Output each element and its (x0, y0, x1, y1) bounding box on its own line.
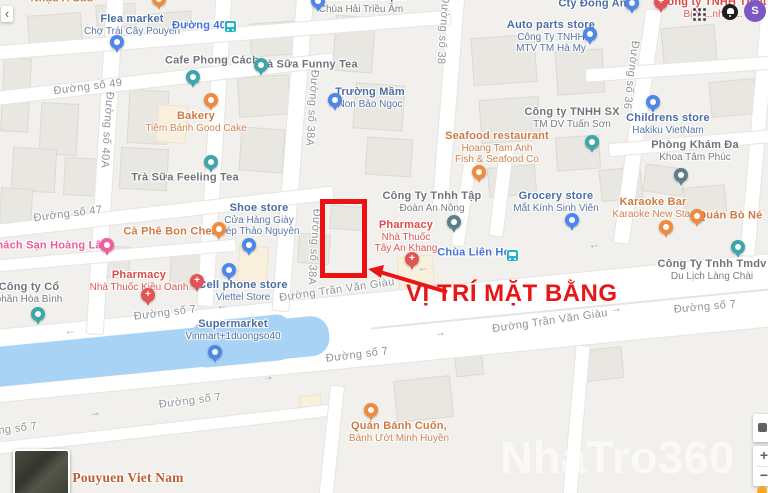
poi-label-supermarket-vinmart[interactable]: SupermarketVinmart+1duongso40 (185, 318, 280, 342)
poi-label-line: Công Ty Tnhh Tmdv (658, 258, 767, 271)
poi-label-phong-kham[interactable]: Phòng Khám ĐaKhoa Tâm Phúc (651, 139, 739, 163)
poi-label-quan-bo-ne[interactable]: Quán Bò Né (698, 210, 763, 223)
poi-label-line: Nhà Thuốc Kiều Oanh (90, 282, 189, 294)
poi-label-line: Mắt Kính Sinh Viên (513, 203, 598, 215)
poi-label-line: Nhậu A Sáu (31, 0, 94, 5)
poi-label-line: Grocery store (513, 190, 598, 203)
poi-label-tra-sua-funny-tea[interactable]: Trà Sữa Funny Tea (256, 59, 358, 72)
poi-label-line: Karaoke Bar (612, 196, 693, 209)
poi-label-line: Hakiku VietNam (626, 125, 710, 137)
pin-dot-glyph (678, 172, 684, 178)
poi-label-line: Trà Sữa Feeling Tea (131, 172, 239, 185)
poi-label-line: Vinmart+1duongso40 (185, 331, 280, 343)
pin-dot-glyph (104, 242, 110, 248)
pin-dot-glyph (216, 226, 222, 232)
poi-label-line: Dép Thảo Nguyên (219, 226, 300, 238)
road (0, 403, 334, 455)
poi-label-line: Tiệm Bánh Good Cake (145, 123, 246, 135)
zoom-out-button[interactable]: − (757, 466, 768, 485)
map-pin-karaoke-new-star[interactable] (659, 220, 673, 234)
poi-label-line: Flea market (84, 13, 180, 26)
map-pin-shoe-store[interactable] (242, 238, 256, 252)
poi-label-line: Cty Đông Anh (558, 0, 633, 10)
pin-dot-glyph (35, 311, 41, 317)
poi-label-an-nong[interactable]: Công Ty Tnhh TậpĐoàn An Nông (383, 190, 482, 214)
poi-label-grocery-store[interactable]: Grocery storeMắt Kính Sinh Viên (513, 190, 598, 214)
map-pin-cty-dong-anh[interactable] (625, 0, 639, 10)
map-pin-quan-banh-cuon[interactable] (364, 403, 378, 417)
poi-label-line: Quán Bò Né (698, 210, 763, 223)
pin-dot-glyph (258, 62, 264, 68)
oneway-arrow-icon: → (262, 370, 274, 383)
poi-label-line: Viettel Store (198, 292, 287, 304)
poi-label-truong-mam-non[interactable]: Trường MầmNon Bảo Ngọc (335, 86, 405, 110)
map-pin-supermarket-vinmart[interactable] (208, 345, 222, 359)
poi-label-line: Đường 40 (172, 20, 226, 33)
map-pin-tra-sua-feeling-tea[interactable] (204, 155, 218, 169)
map-pin-quan-bo-ne[interactable] (690, 209, 704, 223)
poi-label-line: Bánh Ướt Minh Huyền (349, 433, 449, 445)
poi-label-line: phần Hòa Bình (0, 294, 62, 306)
oneway-arrow-icon: ← (588, 238, 600, 251)
map-pin-auto-parts-store[interactable] (583, 27, 597, 41)
poi-label-khach-san-hoang-lam[interactable]: Khách Sạn Hoàng Lâm (0, 240, 112, 253)
pin-dot-glyph (156, 0, 162, 2)
pin-dot-glyph (587, 31, 593, 37)
pin-dot-glyph (315, 0, 321, 4)
poi-label-line: Phòng Khám Đa (651, 139, 739, 152)
pin-dot-glyph (735, 244, 741, 250)
map-pin-cafe-phong-cach[interactable] (186, 70, 200, 84)
zoom-in-button[interactable]: + (757, 446, 768, 465)
poi-label-line: Pouyuen Viet Nam (72, 470, 183, 486)
pin-dot-glyph (694, 213, 700, 219)
poi-label-line: Cafe Phong Cách (165, 55, 259, 68)
map-pin-unlabeled-health-pin[interactable]: + (190, 274, 204, 288)
bell-clapper (729, 15, 731, 17)
poi-label-duong-40-stop[interactable]: Đường 40 (172, 20, 226, 33)
map-pin-grocery-store[interactable] (565, 213, 579, 227)
bell-glyph (727, 8, 734, 14)
map-pin-flea-market[interactable] (110, 35, 124, 49)
zoom-controls: + − (753, 446, 768, 486)
oneway-arrow-icon: → (89, 406, 101, 419)
poi-label-line: Hoang Tam Anh (445, 143, 549, 155)
poi-label-line: Công ty TNHH SX (524, 106, 619, 119)
road (196, 0, 232, 307)
account-avatar[interactable]: S (744, 0, 766, 22)
pin-dot-glyph (332, 97, 338, 103)
poi-label-shoe-store[interactable]: Shoe storeCửa Hàng GiàyDép Thảo Nguyên (219, 202, 300, 238)
map-pin-unlabeled-food-pin[interactable] (152, 0, 166, 6)
poi-label-nhau-a-sau[interactable]: Nhậu A Sáu (31, 0, 94, 5)
poi-label-line: MTV TM Hà My (507, 43, 595, 55)
cross-glyph: + (654, 0, 668, 9)
notification-bell-icon[interactable] (722, 4, 738, 20)
map-tool-button[interactable] (753, 414, 768, 442)
map-pin-phong-kham[interactable] (674, 168, 688, 182)
pin-dot-glyph (629, 0, 635, 6)
poi-label-line: Childrens store (626, 112, 710, 125)
poi-label-line: Shoe store (219, 202, 300, 215)
poi-label-line: Cửa Hàng Giày (219, 215, 300, 227)
poi-label-line: Công Ty TNHH (507, 32, 595, 44)
poi-label-karaoke-new-star[interactable]: Karaoke BarKaraoke New Star (612, 196, 693, 220)
annotation-label: VỊ TRÍ MẶT BẰNG (406, 280, 618, 308)
poi-label-chua-lien-hoa-stop[interactable]: Chùa Liên Hoa (437, 247, 517, 260)
poi-label-flea-market[interactable]: Flea marketChợ Trái Cây Pouyen (84, 13, 180, 37)
pin-dot-glyph (226, 267, 232, 273)
poi-label-line: Pharmacy (375, 219, 438, 232)
poi-label-line: Non Bảo Ngọc (335, 99, 405, 111)
map-pin-truong-mam-non[interactable] (328, 93, 342, 107)
building-footprint (11, 147, 57, 193)
pin-dot-glyph (569, 217, 575, 223)
poi-label-line: Cà Phê Bon Chen (123, 226, 218, 239)
map-pin-seafood-restaurant[interactable] (472, 165, 486, 179)
poi-label-line: Khoa Tâm Phúc (651, 152, 739, 164)
map-tool-icon (758, 423, 767, 432)
poi-label-line: Trà Sữa Funny Tea (256, 59, 358, 72)
poi-label-bakery[interactable]: BakeryTiệm Bánh Good Cake (145, 110, 246, 134)
pin-dot-glyph (451, 219, 457, 225)
poi-label-line: Pharmacy (90, 269, 189, 282)
poi-label-line: Chợ Trái Cây Pouyen (84, 26, 180, 38)
poi-label-cafe-phong-cach[interactable]: Cafe Phong Cách (165, 55, 259, 68)
map-pin-pharmacy-tay-an-khang[interactable]: + (405, 252, 419, 266)
poi-label-auto-parts-store[interactable]: Auto parts storeCông Ty TNHHMTV TM Hà My (507, 19, 595, 55)
building-footprint (119, 147, 169, 191)
poi-label-tmdv-lang-chai[interactable]: Công Ty Tnhh TmdvDu Lịch Làng Chài (658, 258, 767, 282)
building-footprint (365, 136, 414, 177)
map-canvas[interactable]: Đường số 49Đường số 40AĐường số 38AĐường… (0, 0, 768, 493)
poi-label-line: Công Ty Tnhh Tập (383, 190, 482, 203)
poi-label-pouyuen-viet-nam[interactable]: Pouyuen Viet Nam (72, 470, 183, 486)
map-pin-childrens-store[interactable] (646, 95, 660, 109)
highlight-rectangle (320, 199, 367, 278)
poi-label-line: Bakery (145, 110, 246, 123)
poi-label-seafood-restaurant[interactable]: Seafood restaurantHoang Tam AnhFish & Se… (445, 130, 549, 166)
building-footprint (393, 375, 454, 423)
poi-label-line: Karaoke New Star (612, 209, 693, 221)
pin-dot-glyph (650, 99, 656, 105)
map-pin-ca-phe-bon-chen[interactable] (212, 222, 226, 236)
cross-glyph: + (141, 288, 155, 302)
pin-dot-glyph (212, 349, 218, 355)
oneway-arrow-icon: ← (64, 324, 76, 337)
pin-dot-glyph (476, 169, 482, 175)
poi-label-cty-dong-anh[interactable]: Cty Đông Anh (558, 0, 633, 10)
poi-label-quan-banh-cuon[interactable]: Quán Bánh Cuốn,Bánh Ướt Minh Huyền (349, 420, 449, 444)
poi-label-line: Quán Bánh Cuốn, (349, 420, 449, 433)
map-pin-tuan-son[interactable] (585, 135, 599, 149)
poi-label-pharmacy-tay-an-khang[interactable]: PharmacyNhà ThuốcTây An Khang (375, 219, 438, 255)
oneway-arrow-icon: → (434, 326, 446, 339)
cross-glyph: + (190, 274, 204, 288)
poi-label-pharmacy-kieu-oanh[interactable]: PharmacyNhà Thuốc Kiều Oanh (90, 269, 189, 293)
pegman-icon[interactable] (757, 486, 767, 493)
poi-label-line: Cell phone store (198, 279, 287, 292)
watermark: NhaTro360 (500, 432, 735, 484)
map-pin-pharmacy-kieu-oanh[interactable]: + (141, 288, 155, 302)
poi-label-ca-phe-bon-chen[interactable]: Cà Phê Bon Chen (123, 226, 218, 239)
poi-label-line: Fish & Seafood Co (445, 154, 549, 166)
pin-dot-glyph (114, 39, 120, 45)
bus-stop-icon-duong-40-stop[interactable] (225, 21, 236, 32)
map-pin-cong-ty-hoa-binh[interactable] (31, 307, 45, 321)
map-pin-an-nong[interactable] (447, 215, 461, 229)
poi-label-line: Chùa Liên Hoa (437, 247, 517, 260)
map-pin-bakery[interactable] (204, 93, 218, 107)
poi-label-line: Auto parts store (507, 19, 595, 32)
building-footprint (709, 78, 758, 118)
map-pin-khach-san-hoang-lam[interactable] (100, 238, 114, 252)
street-label: Đường số 7 (158, 391, 222, 411)
poi-label-line: TM DV Tuấn Sơn (524, 119, 619, 131)
poi-label-tra-sua-feeling-tea[interactable]: Trà Sữa Feeling Tea (131, 172, 239, 185)
poi-label-tuan-son[interactable]: Công ty TNHH SXTM DV Tuấn Sơn (524, 106, 619, 130)
map-pin-tmdv-lang-chai[interactable] (731, 240, 745, 254)
map-pin-cell-phone-store[interactable] (222, 263, 236, 277)
poi-label-cong-ty-hoa-binh[interactable]: Công ty Cổphần Hòa Bình (0, 281, 62, 305)
pin-dot-glyph (589, 139, 595, 145)
poi-label-line: Nhà Thuốc (375, 232, 438, 244)
satellite-view-toggle[interactable] (13, 449, 70, 493)
poi-label-line: Công ty Cổ (0, 281, 62, 294)
bus-stop-icon-chua-lien-hoa-stop[interactable] (507, 250, 518, 261)
pin-dot-glyph (368, 407, 374, 413)
poi-label-childrens-store[interactable]: Childrens storeHakiku VietNam (626, 112, 710, 136)
poi-label-line: Seafood restaurant (445, 130, 549, 143)
pin-dot-glyph (246, 242, 252, 248)
pin-dot-glyph (190, 74, 196, 80)
pin-dot-glyph (208, 97, 214, 103)
poi-label-buddhist-temple[interactable]: Buddhist TempleChùa Hải Triều Âm (315, 0, 406, 15)
poi-label-cell-phone-store[interactable]: Cell phone storeViettel Store (198, 279, 287, 303)
poi-label-line: Khách Sạn Hoàng Lâm (0, 240, 112, 253)
poi-label-line: Trường Mầm (335, 86, 405, 99)
poi-label-line: Chùa Hải Triều Âm (315, 4, 406, 16)
pin-dot-glyph (208, 159, 214, 165)
poi-label-line: Du Lịch Làng Chài (658, 271, 767, 283)
pin-dot-glyph (663, 224, 669, 230)
poi-label-line: Đoàn An Nông (383, 203, 482, 215)
cross-glyph: + (405, 252, 419, 266)
map-pin-tra-sua-funny-tea[interactable] (254, 58, 268, 72)
map-pin-thiet-bi-y-te[interactable]: + (654, 0, 668, 9)
poi-label-line: Supermarket (185, 318, 280, 331)
back-chevron-button[interactable]: ‹ (1, 6, 13, 22)
apps-grid-icon[interactable] (693, 8, 707, 22)
